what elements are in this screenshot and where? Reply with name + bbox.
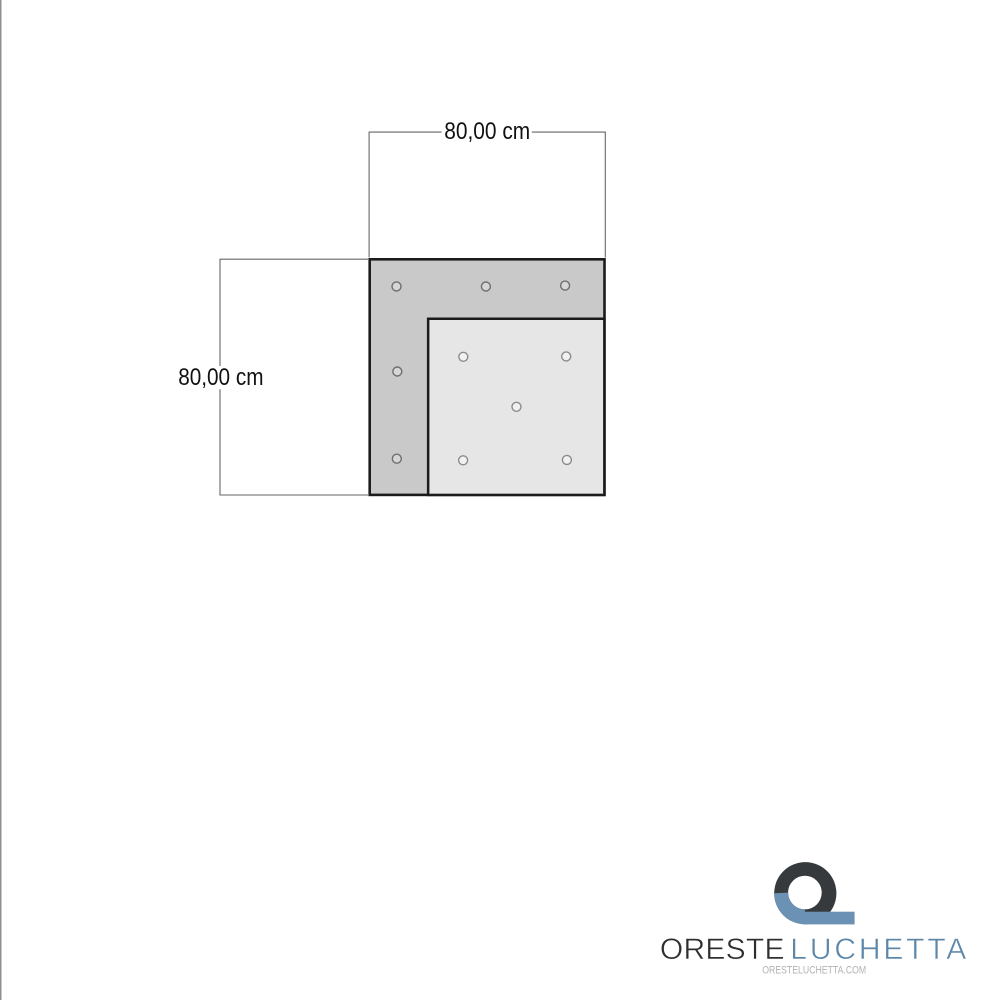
svg-text:80,00 cm: 80,00 cm bbox=[444, 118, 530, 145]
svg-text:80,00 cm: 80,00 cm bbox=[178, 364, 263, 391]
svg-text:ORESTE: ORESTE bbox=[660, 933, 785, 966]
svg-text:LUCHETTA: LUCHETTA bbox=[790, 933, 966, 966]
svg-text:ORESTELUCHETTA.COM: ORESTELUCHETTA.COM bbox=[762, 964, 866, 976]
